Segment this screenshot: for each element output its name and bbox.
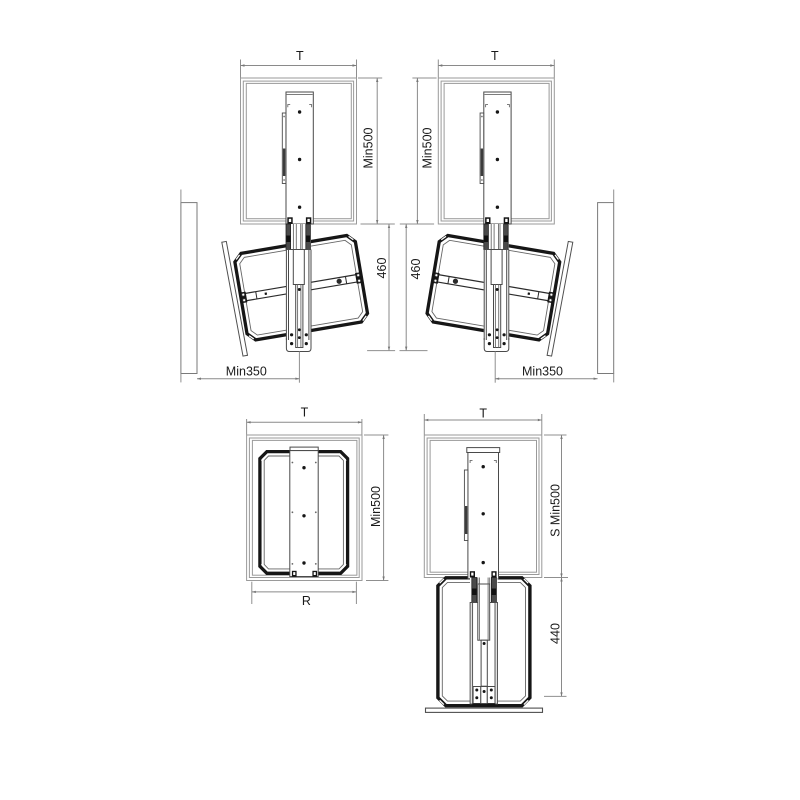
- svg-text:440: 440: [548, 623, 562, 644]
- svg-text:T: T: [491, 49, 499, 63]
- svg-text:460: 460: [375, 258, 389, 279]
- svg-text:S Min500: S Min500: [548, 484, 562, 537]
- svg-text:Min350: Min350: [522, 365, 563, 379]
- svg-text:Min500: Min500: [369, 486, 383, 527]
- svg-text:Min500: Min500: [421, 127, 435, 168]
- svg-text:460: 460: [409, 259, 423, 280]
- svg-text:T: T: [301, 406, 309, 420]
- svg-text:T: T: [479, 407, 487, 421]
- svg-text:T: T: [296, 49, 304, 63]
- svg-text:R: R: [302, 594, 311, 608]
- svg-text:Min350: Min350: [226, 365, 267, 379]
- svg-text:Min500: Min500: [361, 127, 375, 168]
